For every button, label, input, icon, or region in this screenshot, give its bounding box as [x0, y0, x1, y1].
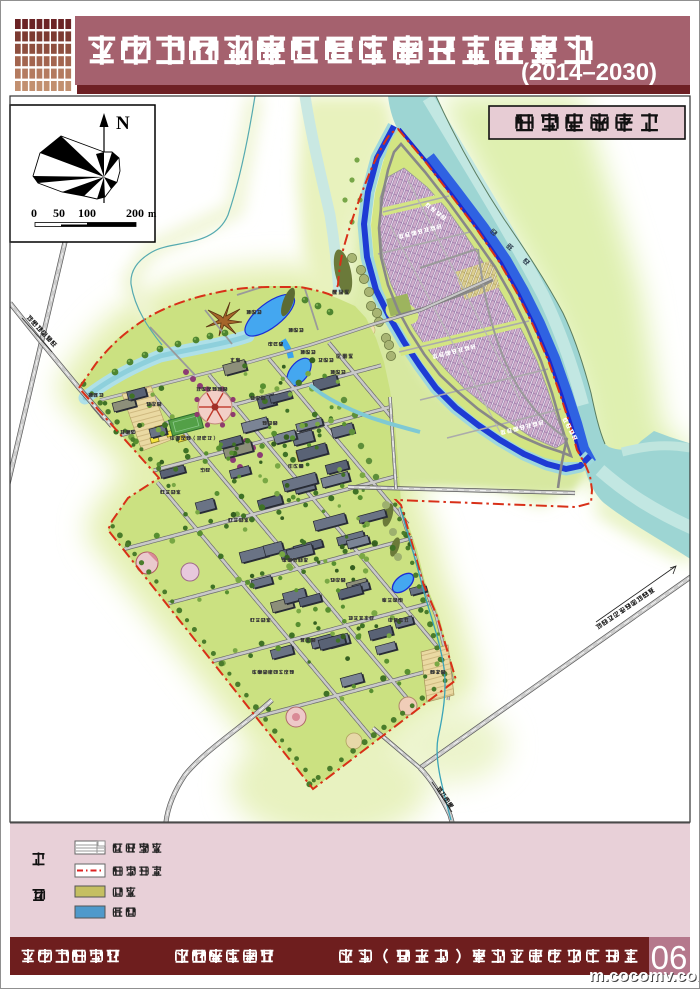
svg-text:m: m [148, 209, 157, 220]
svg-text:50: 50 [53, 206, 65, 220]
svg-text:200: 200 [126, 206, 144, 220]
svg-text:N: N [116, 113, 130, 134]
svg-text:100: 100 [78, 206, 96, 220]
svg-text:0: 0 [31, 206, 37, 220]
svg-text:m.cocomv.com: m.cocomv.com [589, 966, 700, 985]
svg-text:(2014–2030): (2014–2030) [521, 59, 657, 86]
